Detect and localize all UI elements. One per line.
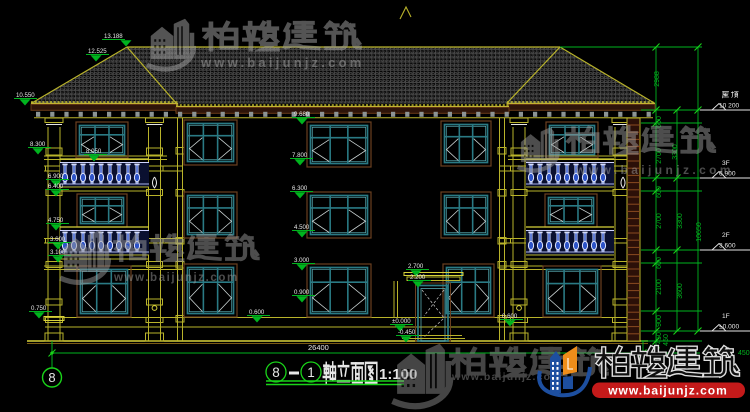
svg-text:10 200: 10 200 — [719, 103, 740, 110]
svg-text:3.600: 3.600 — [719, 243, 736, 250]
svg-text:www.baijunjz.com: www.baijunjz.com — [200, 55, 364, 70]
svg-text:450: 450 — [656, 332, 663, 344]
svg-text:-0.450: -0.450 — [398, 329, 416, 336]
svg-text:±0.000: ±0.000 — [719, 324, 739, 331]
svg-text:www.baijunjz.com: www.baijunjz.com — [451, 371, 562, 383]
svg-text:±0.000: ±0.000 — [392, 318, 411, 325]
svg-text:2F: 2F — [722, 232, 730, 239]
svg-text:3300: 3300 — [677, 213, 684, 229]
svg-text:1: 1 — [307, 365, 315, 380]
svg-text:0.900: 0.900 — [294, 289, 310, 296]
svg-text:3600: 3600 — [677, 283, 684, 299]
svg-text:3.600: 3.600 — [50, 236, 66, 243]
svg-text:10.550: 10.550 — [16, 92, 35, 99]
svg-text:4.750: 4.750 — [48, 217, 64, 224]
svg-text:1F: 1F — [722, 313, 730, 320]
svg-text:2.200: 2.200 — [410, 274, 426, 281]
svg-text:2700: 2700 — [656, 213, 663, 229]
svg-text:7.800: 7.800 — [292, 152, 308, 159]
svg-text:0.600: 0.600 — [249, 309, 265, 316]
svg-text:www.baijunjz.com: www.baijunjz.com — [575, 163, 734, 177]
svg-text:2988: 2988 — [654, 71, 661, 87]
svg-text:www.baijunjz.com: www.baijunjz.com — [607, 384, 728, 398]
svg-text:600: 600 — [656, 186, 663, 198]
svg-text:12.525: 12.525 — [88, 48, 107, 55]
svg-text:0.750: 0.750 — [31, 305, 47, 312]
svg-text:450: 450 — [663, 334, 670, 346]
svg-text:10650: 10650 — [696, 222, 703, 242]
svg-text:8.050: 8.050 — [86, 148, 102, 155]
svg-text:6.900: 6.900 — [48, 173, 64, 180]
svg-text:13.188: 13.188 — [104, 33, 123, 40]
svg-text:6.300: 6.300 — [292, 185, 308, 192]
svg-text:26400: 26400 — [308, 343, 329, 352]
svg-text:4.500: 4.500 — [294, 224, 310, 231]
svg-text:2100: 2100 — [656, 279, 663, 295]
svg-text:450: 450 — [738, 350, 750, 357]
svg-text:www.baijunjz.com: www.baijunjz.com — [113, 272, 239, 284]
svg-text:900: 900 — [656, 315, 663, 327]
svg-text:8: 8 — [272, 365, 280, 380]
svg-text:8: 8 — [48, 370, 55, 385]
svg-text:3.000: 3.000 — [294, 257, 310, 264]
svg-text:8.300: 8.300 — [30, 141, 46, 148]
svg-text:0.600: 0.600 — [502, 313, 518, 320]
svg-text:3.100: 3.100 — [50, 249, 66, 256]
svg-text:6.400: 6.400 — [48, 183, 64, 190]
svg-text:600: 600 — [656, 257, 663, 269]
svg-text:2.700: 2.700 — [408, 263, 424, 270]
svg-text:9.680: 9.680 — [294, 111, 310, 118]
